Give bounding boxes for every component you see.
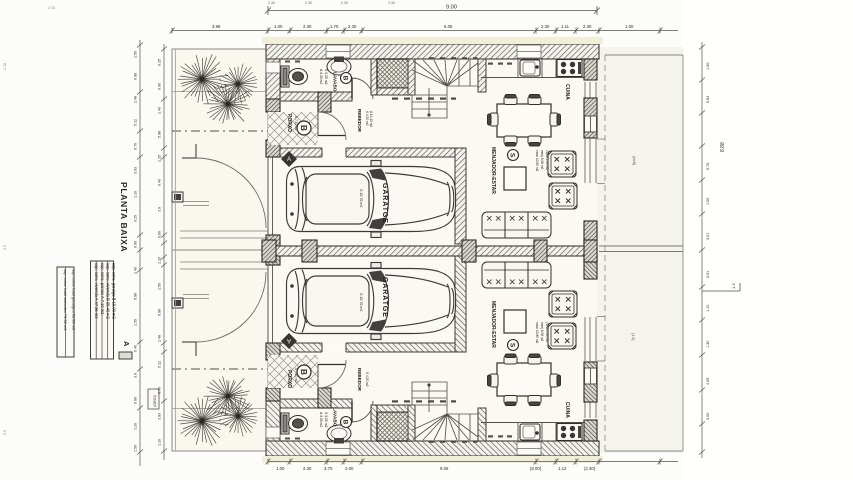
svg-text:REBEDOR: REBEDOR: [357, 109, 362, 133]
svg-text:LAVABO: LAVABO: [332, 407, 338, 427]
svg-text:GARATGE: GARATGE: [381, 183, 388, 224]
svg-text:3.70: 3.70: [324, 466, 333, 471]
svg-text:sup. cons. total vivendes 76.: sup. cons. total vivendes 76.92 m2: [63, 269, 68, 331]
svg-text:S 4.20 m2: S 4.20 m2: [365, 372, 369, 387]
svg-text:menj 8.06 m2: menj 8.06 m2: [540, 322, 544, 342]
svg-text:0.40: 0.40: [158, 179, 162, 186]
svg-text:2.30: 2.30: [303, 24, 312, 29]
svg-text:A: A: [122, 341, 131, 347]
svg-text:2.30: 2.30: [541, 24, 550, 29]
svg-text:(8.00): (8.00): [530, 466, 542, 471]
svg-text:sup. cons. total garatges 31.: sup. cons. total garatges 31.98 m2: [72, 269, 77, 331]
svg-text:1.50: 1.50: [134, 51, 138, 58]
svg-text:1.12: 1.12: [558, 466, 567, 471]
svg-text:0.90: 0.90: [134, 241, 138, 248]
svg-text:1.00: 1.00: [274, 24, 283, 29]
svg-text:GARATGE: GARATGE: [381, 277, 388, 318]
svg-text:2.30: 2.30: [268, 1, 275, 5]
svg-text:S: S: [509, 343, 516, 348]
svg-text:3.93: 3.93: [134, 167, 138, 174]
svg-text:2.00: 2.00: [345, 466, 354, 471]
svg-text:2.40: 2.40: [158, 107, 162, 114]
svg-text:S 4.20 m2: S 4.20 m2: [365, 111, 369, 126]
svg-text:0.40: 0.40: [134, 345, 138, 352]
svg-text:2.30: 2.30: [583, 24, 592, 29]
svg-text:S: S: [509, 153, 516, 158]
svg-text:9.00: 9.00: [446, 5, 457, 11]
svg-text:B: B: [342, 420, 349, 425]
svg-text:B: B: [299, 369, 309, 375]
svg-text:2.48: 2.48: [134, 96, 138, 103]
svg-text:(1.3): (1.3): [631, 333, 635, 340]
svg-text:B: B: [342, 76, 349, 81]
svg-text:1.10: 1.10: [158, 439, 162, 446]
svg-text:4.05: 4.05: [706, 378, 710, 385]
svg-text:0.84: 0.84: [706, 96, 710, 103]
svg-text:1.30: 1.30: [706, 341, 710, 348]
svg-text:S 3.55 m2: S 3.55 m2: [324, 69, 328, 85]
svg-text:1.10: 1.10: [706, 305, 710, 312]
svg-text:cuina 5.10 m2: cuina 5.10 m2: [545, 150, 549, 170]
svg-text:sup. cons. garatge B 15.99 m2: sup. cons. garatge B 15.99 m2: [111, 263, 116, 319]
svg-text:S 15.76 m2: S 15.76 m2: [359, 189, 363, 207]
svg-text:1.35: 1.35: [158, 155, 162, 162]
svg-text:3.9: 3.9: [134, 373, 138, 378]
svg-text:CUINA: CUINA: [564, 402, 570, 418]
svg-text:MENJADOR-ESTAR: MENJADOR-ESTAR: [490, 301, 496, 348]
svg-text:B: B: [299, 125, 309, 131]
svg-text:3.00: 3.00: [706, 413, 710, 420]
svg-text:2.48: 2.48: [158, 335, 162, 342]
svg-text:1.50: 1.50: [134, 445, 138, 452]
svg-text:0.25: 0.25: [134, 215, 138, 222]
svg-text:S 15.76 m2: S 15.76 m2: [359, 293, 363, 311]
svg-text:2.40: 2.40: [134, 267, 138, 274]
svg-text:1.35: 1.35: [134, 319, 138, 326]
svg-text:0.90: 0.90: [158, 83, 162, 90]
svg-text:2.30: 2.30: [305, 1, 312, 5]
svg-text:1.20: 1.20: [158, 257, 162, 264]
svg-text:(ALB): (ALB): [632, 156, 636, 165]
svg-text:2.30: 2.30: [341, 1, 348, 5]
svg-text:1.50: 1.50: [158, 283, 162, 290]
svg-text:PORXO: PORXO: [286, 370, 292, 388]
svg-text:MENJADOR-ESTAR: MENJADOR-ESTAR: [490, 147, 496, 194]
svg-text:1.00: 1.00: [276, 466, 285, 471]
svg-text:1.00: 1.00: [625, 24, 634, 29]
svg-text:0.70: 0.70: [158, 387, 162, 394]
svg-text:LAVABO: LAVABO: [332, 72, 338, 92]
svg-text:PORXO: PORXO: [286, 114, 292, 132]
svg-text:estar 10.80 m2: estar 10.80 m2: [535, 322, 539, 343]
svg-text:estar 10.80 m2: estar 10.80 m2: [535, 150, 539, 171]
svg-text:0.70: 0.70: [134, 143, 138, 150]
svg-text:0.98: 0.98: [134, 73, 138, 80]
svg-text:0.76: 0.76: [706, 163, 710, 170]
svg-text:5.12: 5.12: [158, 361, 162, 368]
svg-text:A 12.13 m2: A 12.13 m2: [369, 111, 373, 127]
svg-text:5.9: 5.9: [3, 430, 7, 435]
svg-text:8.88: 8.88: [720, 142, 726, 152]
svg-text:REBEDOR: REBEDOR: [357, 368, 362, 392]
svg-text:S 3.55 m2: S 3.55 m2: [324, 412, 328, 428]
svg-text:1.20: 1.20: [134, 423, 138, 430]
svg-text:sup. cons. vivenda B 38.46 m2: sup. cons. vivenda B 38.46 m2: [106, 263, 111, 320]
svg-text:3.93: 3.93: [158, 413, 162, 420]
svg-text:2.28: 2.28: [3, 63, 7, 70]
svg-text:1.3: 1.3: [731, 283, 736, 289]
svg-text:5.12: 5.12: [134, 119, 138, 126]
svg-text:A 4.35 m2: A 4.35 m2: [319, 69, 323, 84]
svg-text:1.10: 1.10: [134, 191, 138, 198]
svg-text:2.30: 2.30: [388, 1, 395, 5]
svg-text:0.25: 0.25: [158, 59, 162, 66]
svg-text:A 4.35 m2: A 4.35 m2: [319, 412, 323, 427]
svg-text:(2.30): (2.30): [584, 466, 596, 471]
svg-text:2.30: 2.30: [348, 24, 357, 29]
svg-text:3.9: 3.9: [3, 245, 7, 250]
svg-text:3.9: 3.9: [158, 207, 162, 212]
svg-text:sup. cons. vivenda A 47.35 m2: sup. cons. vivenda A 47.35 m2: [94, 263, 99, 319]
svg-text:1.11: 1.11: [561, 24, 570, 29]
svg-text:0.91: 0.91: [706, 271, 710, 278]
svg-text:sup. cons. porxos A 7.10 m2: sup. cons. porxos A 7.10 m2: [100, 263, 105, 315]
svg-text:CUINA: CUINA: [564, 84, 570, 100]
svg-text:0.98: 0.98: [158, 309, 162, 316]
svg-text:1.00: 1.00: [706, 198, 710, 205]
svg-text:6.05: 6.05: [444, 24, 453, 29]
svg-text:0.60: 0.60: [134, 397, 138, 404]
svg-text:5.98: 5.98: [134, 293, 138, 300]
svg-text:5.98: 5.98: [158, 131, 162, 138]
svg-text:cuina 5.10 m2: cuina 5.10 m2: [545, 322, 549, 342]
svg-text:0.60: 0.60: [158, 231, 162, 238]
svg-text:9.05: 9.05: [440, 466, 449, 471]
svg-text:3.01: 3.01: [706, 233, 710, 240]
svg-text:2.28: 2.28: [48, 6, 55, 10]
svg-text:1.00: 1.00: [706, 63, 710, 70]
svg-text:menj 8.06 m2: menj 8.06 m2: [540, 150, 544, 170]
svg-text:1.70: 1.70: [330, 24, 339, 29]
svg-text:3.98: 3.98: [212, 24, 221, 29]
svg-text:(OESO): (OESO): [153, 395, 157, 407]
svg-text:PLANTA BAIXA: PLANTA BAIXA: [119, 182, 129, 252]
svg-text:2.30: 2.30: [303, 466, 312, 471]
